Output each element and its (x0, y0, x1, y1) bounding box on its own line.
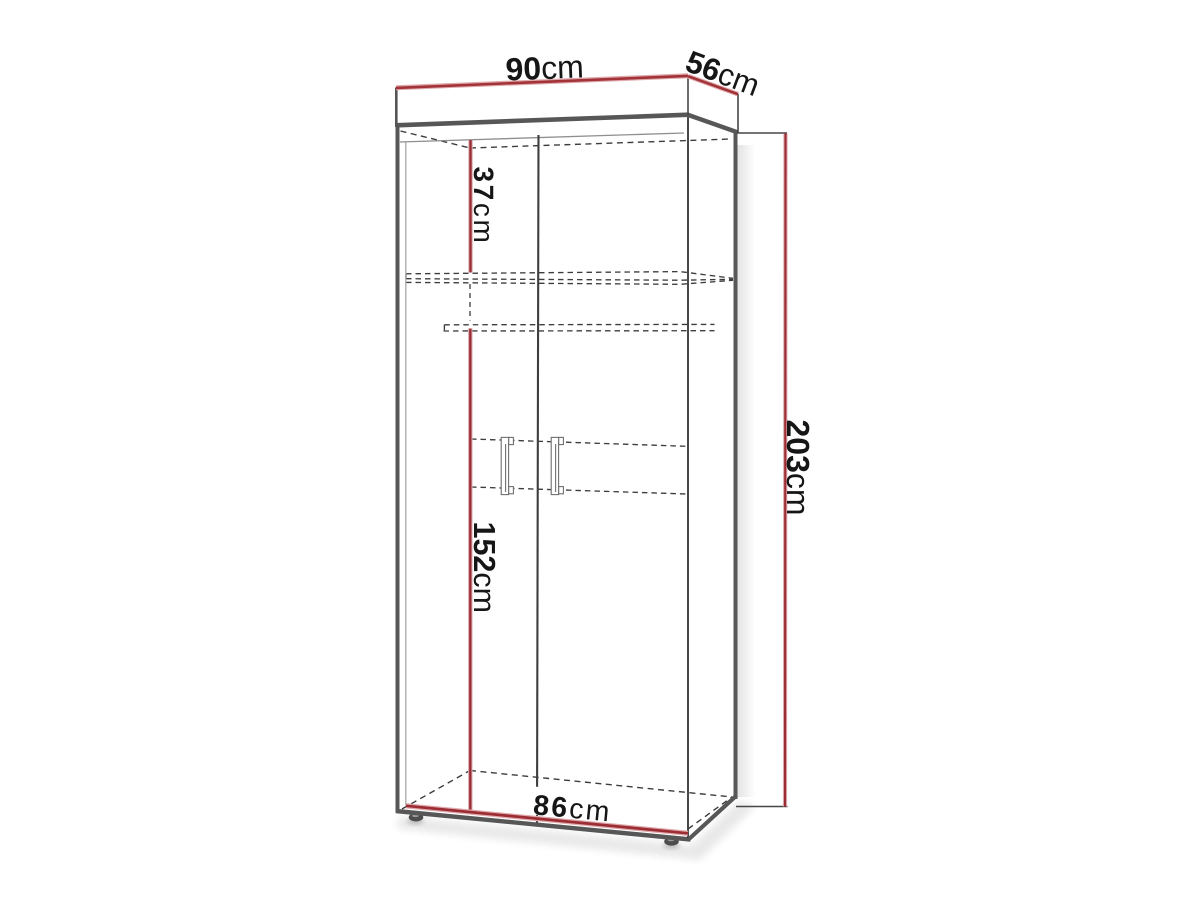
svg-text:90cm: 90cm (505, 48, 585, 87)
svg-text:152cm: 152cm (467, 522, 501, 614)
svg-text:203cm: 203cm (780, 420, 816, 516)
svg-text:37cm: 37cm (468, 167, 499, 246)
